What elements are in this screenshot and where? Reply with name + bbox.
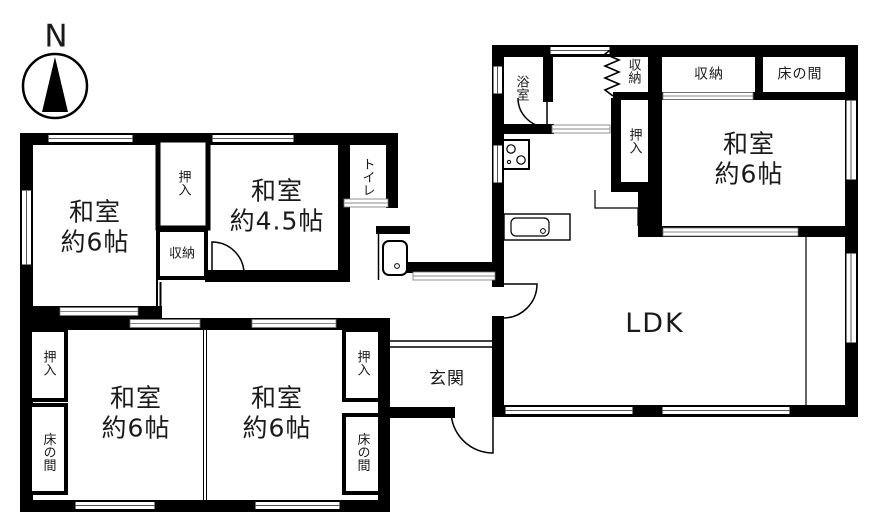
floor-plan: N 和室 約6帖 押入 収納 和室 約4.5帖 トイレ 押入 床の間 和室 約6… [0, 0, 870, 528]
room-label-ne-shuunou-small: 収納 [627, 58, 640, 84]
window-icon [493, 66, 503, 94]
room-name: 和室 [102, 384, 171, 414]
genkan-step-line [390, 341, 500, 347]
sliding-door-icon [60, 308, 138, 316]
compass-north-label: N [44, 19, 67, 56]
door-arc-entrance [451, 411, 493, 453]
window-icon [505, 407, 633, 415]
room-label-ne-washitsu: 和室 約6帖 [715, 130, 784, 189]
room-label-sw-oshiire: 押入 [42, 350, 55, 376]
room-label-ldk: LDK [625, 308, 685, 340]
sliding-door-icon [663, 228, 798, 236]
room-label-sw-washitsu-left: 和室 約6帖 [102, 384, 171, 443]
sliding-door-icon [130, 320, 200, 328]
compass-icon [23, 54, 87, 118]
room-name: 和室 [230, 177, 325, 207]
sliding-door-icon [552, 125, 610, 133]
door-arc-bathroom [518, 98, 547, 127]
door-arc-ldk [503, 284, 537, 318]
room-label-sw-tokonoma: 床の間 [42, 433, 55, 472]
room-label-ne-oshiire: 押入 [628, 128, 641, 154]
room-label-genkan: 玄関 [429, 369, 465, 389]
window-icon [48, 135, 133, 143]
stove-icon [503, 140, 529, 169]
floor-plan-drawing [0, 0, 870, 528]
window-icon [846, 100, 857, 180]
room-name: 和室 [61, 198, 130, 228]
window-icon [22, 190, 32, 265]
room-label-washitsu45: 和室 約4.5帖 [230, 177, 325, 236]
sliding-door-icon [344, 199, 388, 207]
room-size: 約6帖 [102, 413, 171, 443]
washbasin-icon [383, 241, 407, 275]
window-icon [212, 135, 294, 143]
window-icon [550, 47, 610, 55]
door-arc-washitsu45 [212, 242, 244, 274]
room-label-toilet: トイレ [361, 158, 374, 197]
room-label-nw-washitsu: 和室 約6帖 [61, 198, 130, 257]
window-icon [846, 253, 857, 343]
room-label-se-oshiire: 押入 [356, 350, 369, 376]
window-icon [255, 502, 340, 510]
room-size: 約6帖 [715, 159, 784, 189]
room-label-nw-oshiire: 押入 [177, 170, 190, 196]
room-label-ne-tokonoma: 床の間 [778, 67, 823, 84]
kitchen-sink-icon [504, 214, 570, 240]
kitchen-step-line [595, 190, 638, 226]
room-size: 約6帖 [243, 413, 312, 443]
room-label-bathroom: 浴室 [515, 75, 528, 101]
sliding-door-icon [413, 272, 495, 280]
room-label-sw-washitsu-right: 和室 約6帖 [243, 384, 312, 443]
window-icon [493, 145, 503, 183]
window-icon [75, 502, 155, 510]
window-icon [662, 407, 790, 415]
room-name: 和室 [715, 130, 784, 160]
room-size: 約6帖 [61, 227, 130, 257]
room-label-se-tokonoma: 床の間 [356, 433, 369, 472]
room-name: 和室 [243, 384, 312, 414]
room-label-ne-shuunou: 収納 [694, 67, 724, 84]
sliding-door-icon [663, 93, 753, 100]
sliding-door-icon [252, 320, 336, 328]
room-size: 約4.5帖 [230, 206, 325, 236]
room-label-nw-shuunou: 収納 [169, 246, 195, 261]
